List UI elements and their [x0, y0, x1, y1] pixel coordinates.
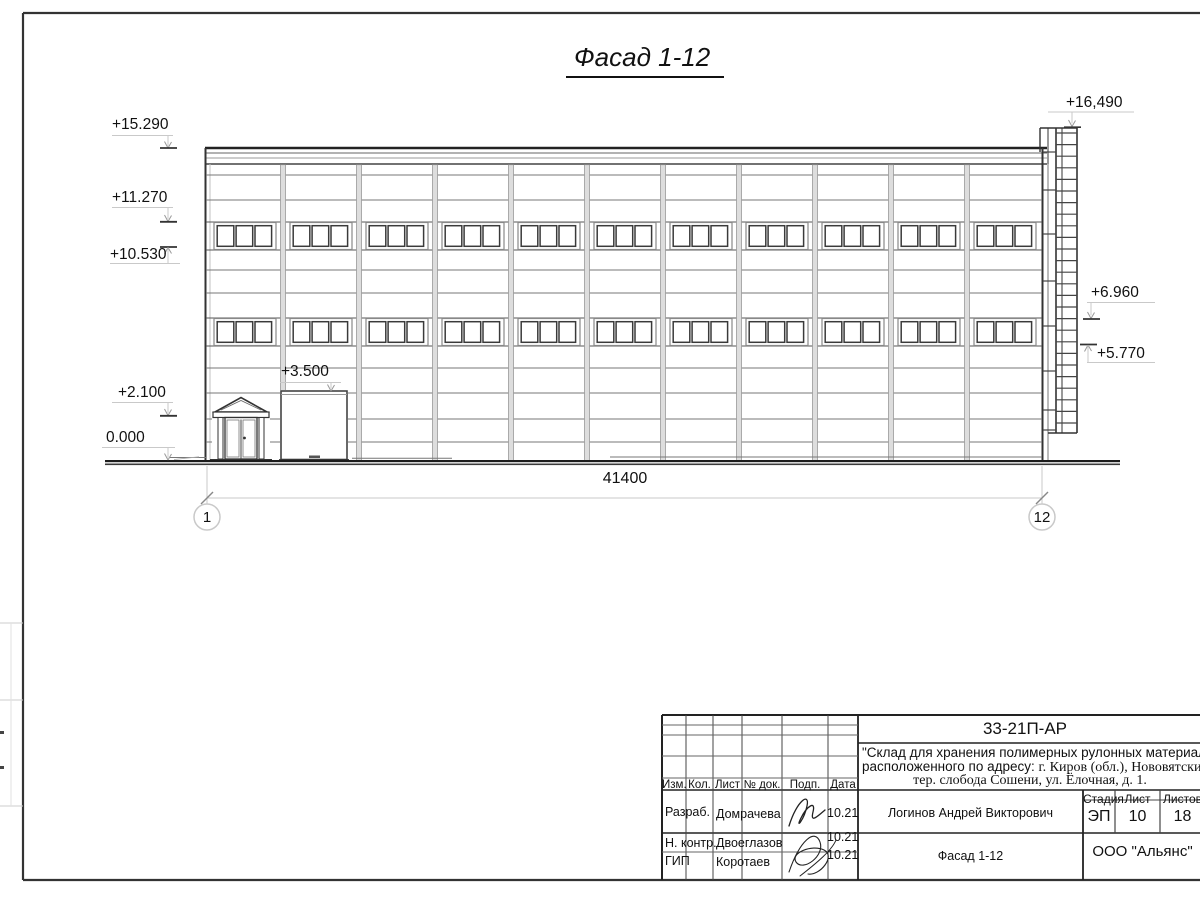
titleblock-approver: Логинов Андрей Викторович [858, 806, 1083, 820]
titleblock-company: ООО "Альянс" [1085, 843, 1200, 860]
axis-bubble-12: 12 [1029, 509, 1055, 526]
titleblock-drawing-name: Фасад 1-12 [858, 849, 1083, 863]
elevation-mark-11270: +11.270 [112, 189, 167, 207]
elevation-mark-6960: +6.960 [1091, 284, 1139, 302]
sheet-value: 10 [1115, 808, 1160, 826]
staff-date-2: 10.21 [827, 830, 858, 844]
staff-date-3: 10.21 [827, 848, 858, 862]
drawing-title: Фасад 1-12 [566, 42, 724, 78]
elevation-mark-2100: +2.100 [118, 384, 166, 402]
elevation-mark-0000: 0.000 [106, 429, 145, 447]
stage-header: Стадия [1083, 792, 1115, 806]
elevation-mark-3500: +3.500 [281, 363, 329, 381]
stage-value: ЭП [1083, 808, 1115, 826]
elevation-mark-16490: +16,490 [1066, 94, 1122, 112]
staff-date-1: 10.21 [827, 806, 858, 820]
sheets-header: Листов [1160, 792, 1200, 806]
staff-name-2: Двоеглазов [716, 836, 782, 850]
rev-header-kol: Кол. [686, 779, 713, 791]
staff-name-3: Коротаев [716, 855, 770, 869]
rev-header-list: Лист [713, 779, 742, 791]
staff-role-1: Разраб. [665, 805, 710, 819]
titleblock-project-line1: "Склад для хранения полимерных рулонных … [862, 745, 1200, 760]
sheets-value: 18 [1160, 808, 1200, 826]
titleblock-project-line3: тер. слобода Сошени, ул. Ёлочная, д. 1. [862, 773, 1198, 789]
project-line2-sans: расположенного по адресу: [862, 759, 1039, 774]
axis-bubble-1: 1 [194, 509, 220, 526]
staff-role-2: Н. контр. [665, 836, 717, 850]
elevation-mark-15290: +15.290 [112, 116, 168, 134]
rev-header-doc: № док. [742, 779, 782, 791]
elevation-mark-10530: +10.530 [110, 246, 166, 264]
rev-header-izm: Изм. [662, 779, 686, 791]
drawing-sheet: Фасад 1-12 +15.290 +11.270 +10.530 +2.10… [0, 0, 1200, 900]
staff-name-1: Домрачева [716, 807, 781, 821]
titleblock-doc-code: 33-21П-АР [860, 719, 1190, 739]
elevation-mark-5770: +5.770 [1097, 345, 1145, 363]
rev-header-podp: Подп. [782, 779, 828, 791]
rev-header-data: Дата [828, 779, 858, 791]
dimension-total: 41400 [560, 470, 690, 488]
sheet-header: Лист [1115, 792, 1160, 806]
staff-role-3: ГИП [665, 854, 690, 868]
